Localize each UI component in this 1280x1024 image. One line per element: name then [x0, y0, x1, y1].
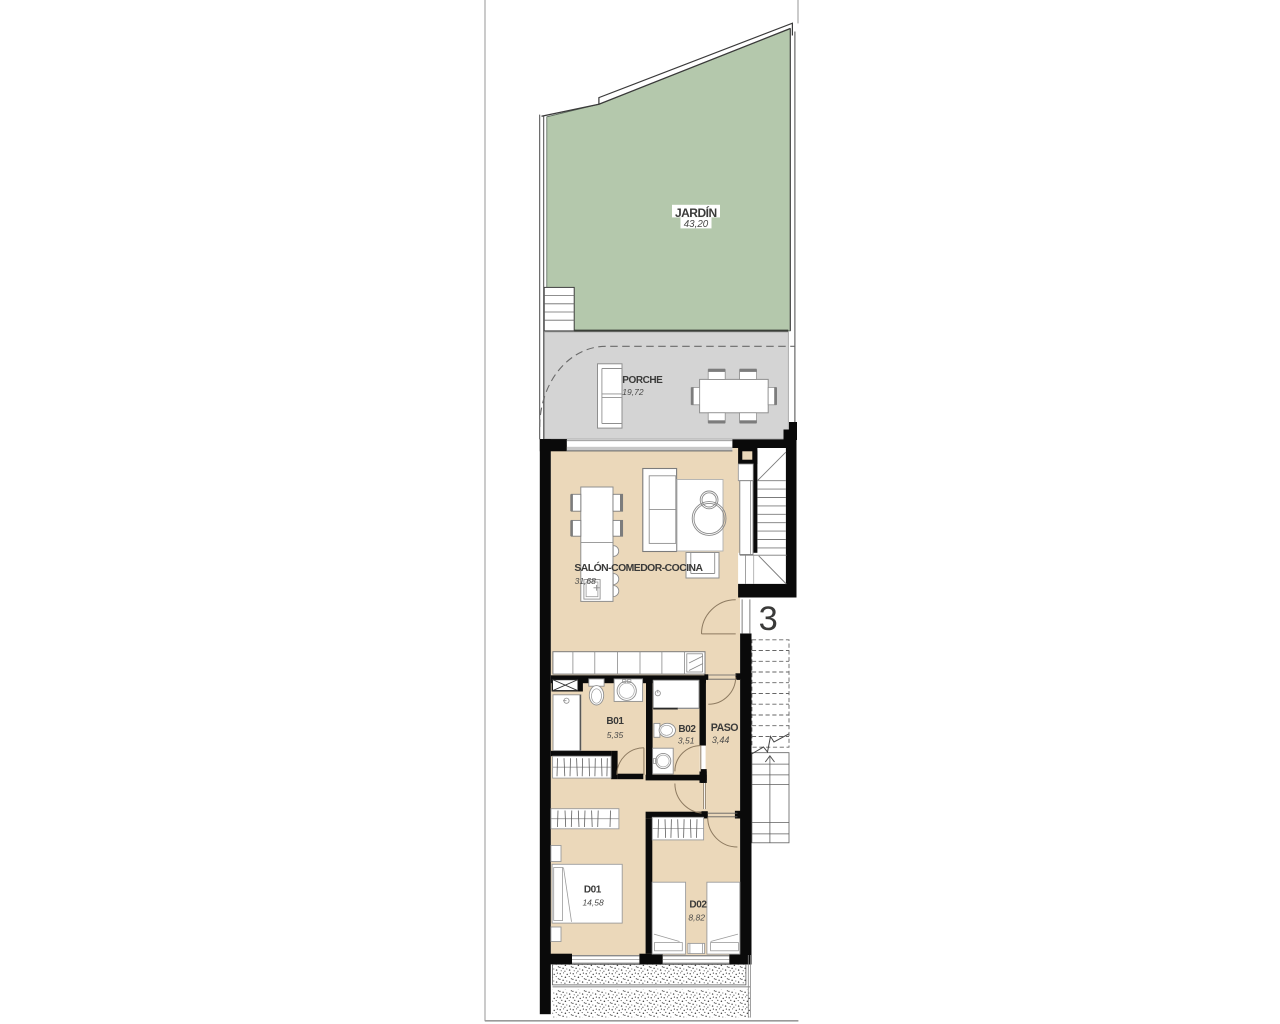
svg-text:SALÓN-COMEDOR-COCINA: SALÓN-COMEDOR-COCINA [574, 561, 703, 574]
svg-text:3,44: 3,44 [712, 735, 730, 745]
svg-text:8,82: 8,82 [688, 913, 705, 923]
svg-text:5,35: 5,35 [607, 730, 624, 740]
svg-text:B02: B02 [678, 724, 696, 735]
svg-text:D02: D02 [689, 900, 707, 911]
svg-text:14,58: 14,58 [582, 897, 604, 907]
svg-text:3: 3 [759, 600, 778, 638]
svg-text:B01: B01 [606, 716, 624, 727]
svg-text:D01: D01 [584, 884, 602, 895]
svg-text:31,68: 31,68 [575, 576, 597, 586]
svg-text:PASO: PASO [711, 722, 738, 734]
svg-text:43,20: 43,20 [684, 219, 709, 230]
svg-text:JARDÍN: JARDÍN [675, 205, 717, 220]
svg-text:PORCHE: PORCHE [622, 375, 663, 386]
svg-text:19,72: 19,72 [622, 387, 644, 397]
svg-text:3,51: 3,51 [678, 735, 695, 745]
